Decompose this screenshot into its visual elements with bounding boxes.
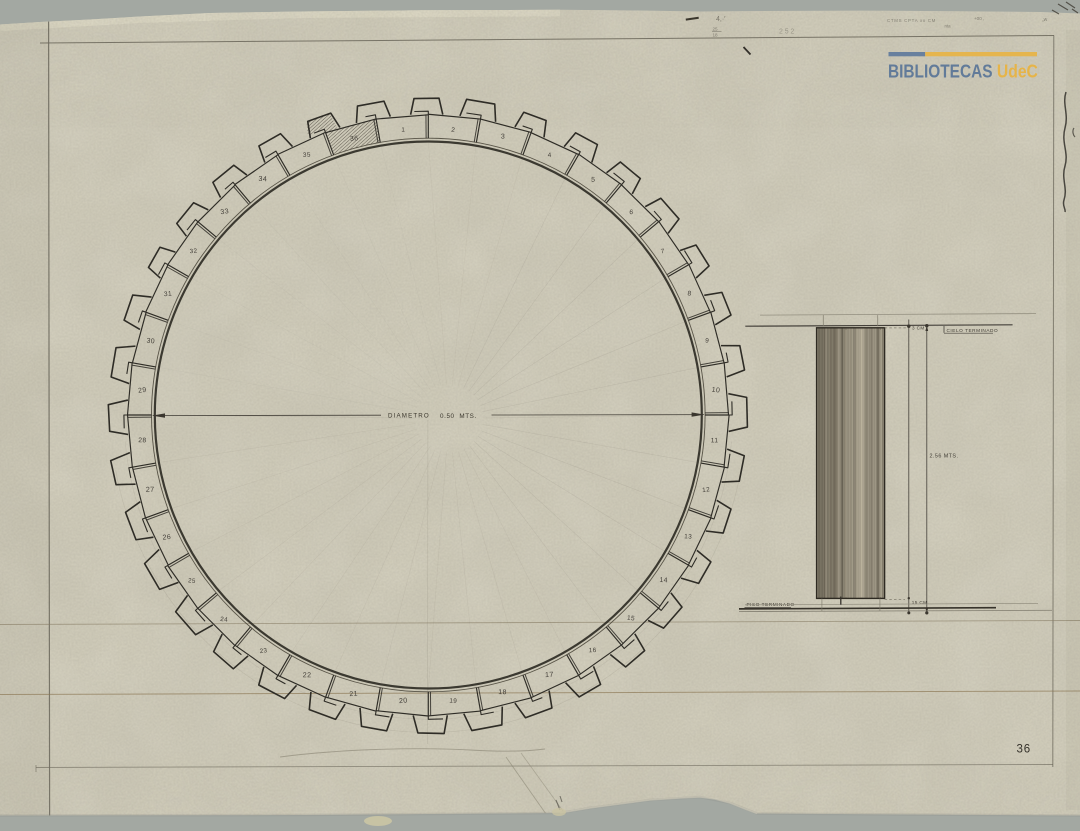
svg-text:2.56 MTS.: 2.56 MTS. (930, 454, 959, 460)
svg-text:36: 36 (350, 135, 359, 143)
svg-text:252: 252 (779, 29, 796, 36)
svg-text:13: 13 (684, 533, 692, 540)
svg-text:17: 17 (545, 670, 554, 679)
svg-text:28: 28 (138, 437, 146, 444)
svg-text:15: 15 (627, 615, 636, 623)
svg-text:18: 18 (498, 689, 507, 696)
svg-text:31: 31 (164, 291, 173, 299)
svg-text:11: 11 (711, 437, 719, 444)
svg-text:BIBLIOTECAS: BIBLIOTECAS (888, 62, 993, 82)
svg-text:+00 ,: +00 , (974, 16, 984, 21)
svg-text:12: 12 (702, 486, 711, 494)
svg-text:29: 29 (138, 387, 147, 395)
svg-text:CIELO TERMINADO: CIELO TERMINADO (947, 328, 999, 333)
svg-text:5: 5 (591, 177, 596, 184)
svg-text:22: 22 (303, 671, 312, 679)
svg-text:14: 14 (659, 577, 668, 585)
svg-text:8: 8 (687, 290, 691, 297)
svg-text:6: 6 (629, 209, 634, 216)
svg-text:1: 1 (401, 127, 405, 134)
svg-text:21: 21 (349, 691, 358, 698)
svg-text:26: 26 (162, 534, 171, 542)
svg-text:36: 36 (1017, 744, 1031, 756)
svg-text:nta: nta (945, 24, 952, 29)
svg-text:25: 25 (713, 27, 719, 32)
svg-text:34: 34 (258, 174, 267, 183)
svg-text:10: 10 (711, 387, 720, 395)
svg-text:CTMS CPTA xx CM: CTMS CPTA xx CM (887, 18, 936, 23)
svg-text:23: 23 (259, 647, 268, 655)
svg-text:30: 30 (146, 338, 155, 346)
svg-text:32: 32 (189, 248, 197, 256)
svg-text:16: 16 (589, 647, 597, 654)
svg-text:DIAMETRO: DIAMETRO (388, 413, 430, 420)
svg-text:24: 24 (220, 616, 229, 624)
svg-text:33: 33 (220, 208, 229, 216)
svg-text:UdeC: UdeC (997, 62, 1038, 82)
svg-text:9: 9 (705, 337, 710, 344)
svg-text:4: 4 (548, 152, 552, 159)
svg-text:„w: „w (1042, 17, 1048, 23)
svg-text:35: 35 (303, 152, 311, 160)
svg-text:18: 18 (713, 33, 719, 38)
svg-text:3: 3 (501, 133, 506, 141)
svg-text:25: 25 (188, 577, 197, 585)
svg-text:20: 20 (399, 697, 408, 706)
svg-text:0.50 MTS.: 0.50 MTS. (440, 413, 477, 420)
svg-text:19: 19 (449, 698, 457, 705)
svg-text:27: 27 (146, 485, 155, 494)
svg-text:3 CM: 3 CM (912, 325, 925, 330)
svg-text:4,·′: 4,·′ (716, 16, 726, 23)
